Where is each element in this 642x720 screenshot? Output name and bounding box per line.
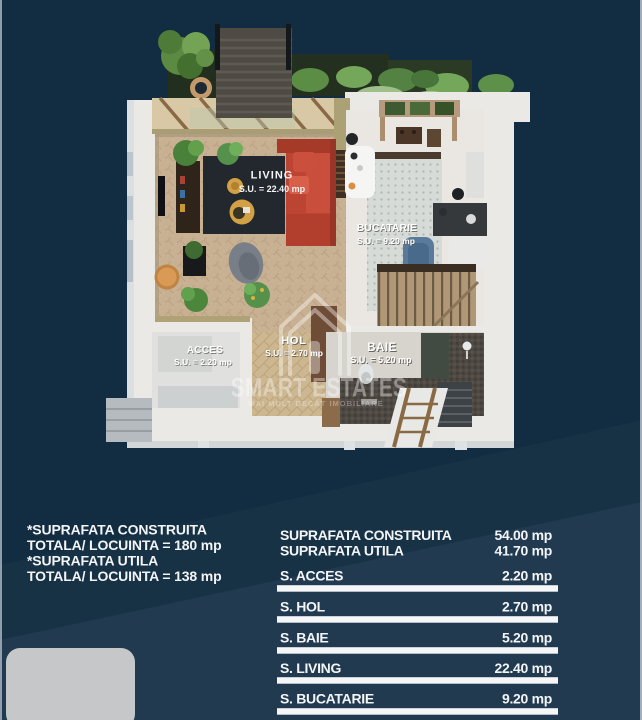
svg-text:5.20 mp: 5.20 mp: [502, 630, 552, 646]
svg-text:S. LIVING: S. LIVING: [280, 660, 341, 676]
svg-text:TOTALA/ LOCUINTA = 138 mp: TOTALA/ LOCUINTA = 138 mp: [27, 568, 221, 584]
svg-text:*SUPRAFATA CONSTRUITA: *SUPRAFATA CONSTRUITA: [27, 522, 207, 538]
svg-text:HOL: HOL: [281, 335, 307, 347]
svg-text:41.70 mp: 41.70 mp: [494, 543, 552, 559]
svg-text:2.20 mp: 2.20 mp: [502, 568, 552, 584]
svg-text:BAIE: BAIE: [367, 342, 396, 354]
svg-text:2.70 mp: 2.70 mp: [502, 599, 552, 615]
svg-text:S.U. = 9.20 mp: S.U. = 9.20 mp: [357, 236, 415, 246]
svg-text:9.20 mp: 9.20 mp: [502, 691, 552, 707]
svg-text:22.40 mp: 22.40 mp: [494, 660, 552, 676]
svg-text:*SUPRAFATA UTILA: *SUPRAFATA UTILA: [27, 553, 158, 569]
svg-text:S.U. = 22.40 mp: S.U. = 22.40 mp: [239, 184, 306, 194]
svg-text:BUCATARIE: BUCATARIE: [357, 223, 417, 234]
svg-text:SUPRAFATA UTILA: SUPRAFATA UTILA: [280, 543, 404, 559]
svg-text:S. BUCATARIE: S. BUCATARIE: [280, 691, 374, 707]
svg-text:TOTALA/ LOCUINTA = 180 mp: TOTALA/ LOCUINTA = 180 mp: [27, 537, 221, 553]
svg-text:LIVING: LIVING: [251, 170, 294, 182]
svg-text:S. HOL: S. HOL: [280, 599, 326, 615]
svg-text:S. BAIE: S. BAIE: [280, 630, 328, 646]
svg-text:54.00 mp: 54.00 mp: [494, 527, 552, 543]
svg-text:ACCES: ACCES: [187, 345, 224, 356]
svg-text:SUPRAFATA CONSTRUITA: SUPRAFATA CONSTRUITA: [280, 527, 452, 543]
svg-text:S.U. = 2.20 mp: S.U. = 2.20 mp: [174, 357, 232, 367]
svg-text:S. ACCES: S. ACCES: [280, 568, 343, 584]
svg-text:S.U. = 5.20 mp: S.U. = 5.20 mp: [350, 355, 412, 365]
